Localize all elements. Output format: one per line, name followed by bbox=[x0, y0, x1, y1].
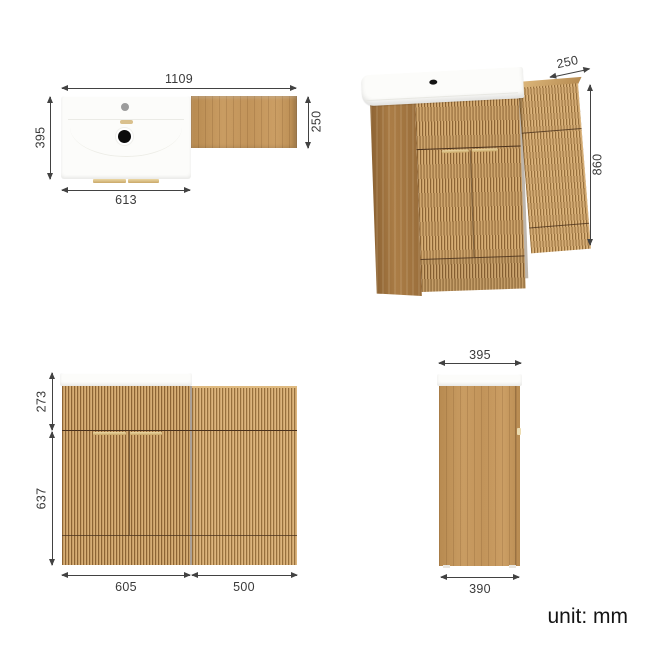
handle-left-top-view bbox=[93, 179, 126, 183]
handle-side-profile bbox=[517, 428, 521, 435]
dim-label-side-bottom-depth: 390 bbox=[460, 582, 500, 597]
dim-line-side-top-depth bbox=[439, 363, 521, 364]
handle-right-top-view bbox=[128, 179, 159, 183]
dim-line-wc-width bbox=[192, 575, 297, 576]
foot-right-side bbox=[509, 565, 516, 568]
dim-label-basin-depth: 395 bbox=[34, 126, 49, 150]
dim-line-lower-height bbox=[52, 432, 53, 565]
cabinet-side-panel bbox=[439, 386, 520, 566]
front-groove-top bbox=[62, 430, 297, 431]
side-view: 395 390 bbox=[400, 340, 620, 610]
dim-line-basin-depth bbox=[50, 97, 51, 179]
dim-label-vanity-width: 605 bbox=[106, 580, 146, 595]
overflow-slot bbox=[120, 120, 133, 124]
door-split-front bbox=[129, 431, 130, 535]
perspective-view: 250 860 bbox=[340, 40, 620, 310]
handle-right-3d bbox=[472, 148, 498, 152]
basin-front-strip bbox=[60, 373, 192, 386]
front-groove-bottom bbox=[62, 535, 297, 536]
basin-top bbox=[61, 96, 191, 179]
dim-label-basin-width: 613 bbox=[106, 193, 146, 208]
dim-label-wc-width: 500 bbox=[224, 580, 264, 595]
dim-label-height: 860 bbox=[591, 153, 606, 177]
wc-unit-front-face bbox=[518, 83, 591, 253]
top-view: 1109 395 250 613 bbox=[0, 0, 340, 220]
unit-note: unit: mm bbox=[480, 605, 628, 629]
front-view: 273 637 605 500 bbox=[0, 340, 340, 610]
drain-hole bbox=[118, 130, 131, 143]
wc-unit-3d bbox=[518, 77, 591, 253]
handle-left-front bbox=[93, 432, 126, 435]
dim-label-wc-depth: 250 bbox=[310, 110, 325, 134]
wc-unit-groove-lower bbox=[529, 223, 589, 229]
faucet-hole bbox=[121, 103, 129, 111]
vanity-front-face-3d bbox=[415, 98, 526, 292]
dim-line-basin-width bbox=[62, 190, 190, 191]
handle-right-front bbox=[130, 432, 162, 435]
dim-label-lower-height: 637 bbox=[35, 487, 50, 511]
foot-left-side bbox=[443, 565, 450, 568]
door-split-3d bbox=[470, 150, 475, 257]
dim-line-vanity-width bbox=[62, 575, 190, 576]
wc-front bbox=[192, 386, 297, 565]
dim-label-overall-width: 1109 bbox=[159, 72, 199, 87]
wc-countertop bbox=[191, 96, 297, 148]
vanity-front bbox=[62, 386, 190, 565]
plinth-shade bbox=[421, 256, 526, 292]
vanity-3d-assembly bbox=[361, 66, 594, 304]
dim-line-side-bottom-depth bbox=[441, 577, 519, 578]
wc-unit-groove-upper bbox=[522, 128, 582, 134]
door-edge-line-side bbox=[515, 386, 516, 566]
vanity-side-panel-3d bbox=[370, 101, 422, 296]
basin-side-strip bbox=[437, 374, 522, 386]
dim-line-upper-height bbox=[52, 373, 53, 430]
handle-left-3d bbox=[442, 149, 469, 153]
product-dimension-sheet: 1109 395 250 613 bbox=[0, 0, 650, 650]
dim-line-overall-width bbox=[62, 88, 296, 89]
dim-label-upper-height: 273 bbox=[35, 390, 50, 414]
tap-hole-3d bbox=[429, 79, 437, 84]
dim-label-side-top-depth: 395 bbox=[460, 348, 500, 363]
unit-seam-front bbox=[190, 386, 192, 565]
